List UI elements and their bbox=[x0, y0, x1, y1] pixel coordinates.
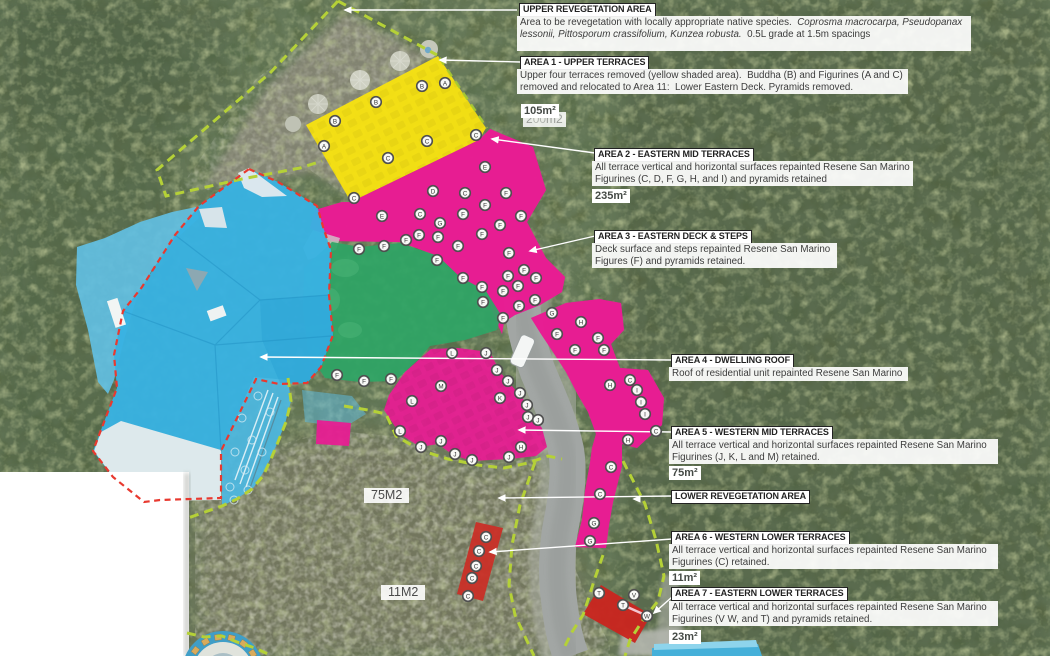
svg-text:J: J bbox=[507, 454, 510, 461]
svg-text:J: J bbox=[495, 367, 498, 374]
svg-text:E: E bbox=[483, 164, 487, 171]
svg-text:D: D bbox=[431, 188, 436, 195]
svg-text:J: J bbox=[470, 457, 473, 464]
svg-text:J: J bbox=[439, 438, 442, 445]
svg-text:J: J bbox=[419, 444, 422, 451]
svg-text:F: F bbox=[357, 246, 361, 253]
svg-text:C: C bbox=[477, 548, 482, 555]
svg-text:C: C bbox=[352, 195, 357, 202]
svg-text:G: G bbox=[588, 538, 593, 545]
svg-text:C: C bbox=[609, 464, 614, 471]
svg-text:I: I bbox=[636, 387, 638, 394]
svg-text:J: J bbox=[506, 378, 509, 385]
svg-text:J: J bbox=[484, 350, 487, 357]
svg-text:F: F bbox=[481, 299, 485, 306]
svg-text:C: C bbox=[463, 190, 468, 197]
svg-text:F: F bbox=[436, 234, 440, 241]
svg-text:C: C bbox=[474, 132, 479, 139]
svg-text:J: J bbox=[453, 451, 456, 458]
svg-text:C: C bbox=[466, 593, 471, 600]
svg-text:G: G bbox=[438, 220, 443, 227]
svg-text:L: L bbox=[398, 428, 402, 435]
svg-text:F: F bbox=[516, 283, 520, 290]
svg-text:C: C bbox=[628, 377, 633, 384]
svg-text:B: B bbox=[420, 83, 424, 90]
svg-text:F: F bbox=[389, 376, 393, 383]
svg-text:F: F bbox=[596, 335, 600, 342]
svg-text:F: F bbox=[602, 347, 606, 354]
svg-text:F: F bbox=[498, 222, 502, 229]
svg-text:G: G bbox=[550, 310, 555, 317]
svg-text:F: F bbox=[417, 232, 421, 239]
svg-text:F: F bbox=[573, 347, 577, 354]
svg-text:I: I bbox=[640, 399, 642, 406]
svg-text:L: L bbox=[450, 350, 454, 357]
svg-text:F: F bbox=[504, 190, 508, 197]
svg-text:B: B bbox=[333, 118, 337, 125]
svg-text:F: F bbox=[501, 315, 505, 322]
svg-text:I: I bbox=[644, 411, 646, 418]
svg-text:F: F bbox=[480, 284, 484, 291]
svg-text:C: C bbox=[598, 491, 603, 498]
svg-text:G: G bbox=[592, 520, 597, 527]
svg-text:T: T bbox=[621, 602, 625, 609]
svg-text:F: F bbox=[534, 275, 538, 282]
svg-text:F: F bbox=[480, 231, 484, 238]
svg-text:E: E bbox=[380, 213, 384, 220]
svg-text:F: F bbox=[404, 237, 408, 244]
svg-text:C: C bbox=[418, 211, 423, 218]
svg-text:L: L bbox=[410, 398, 414, 405]
svg-text:H: H bbox=[579, 319, 584, 326]
svg-text:F: F bbox=[335, 372, 339, 379]
svg-text:H: H bbox=[608, 382, 613, 389]
svg-text:F: F bbox=[507, 250, 511, 257]
svg-text:F: F bbox=[382, 243, 386, 250]
svg-text:F: F bbox=[517, 303, 521, 310]
svg-text:J: J bbox=[526, 414, 529, 421]
svg-text:C: C bbox=[654, 428, 659, 435]
svg-text:F: F bbox=[461, 211, 465, 218]
svg-text:W: W bbox=[644, 613, 650, 620]
svg-text:F: F bbox=[435, 257, 439, 264]
svg-text:F: F bbox=[519, 213, 523, 220]
svg-text:F: F bbox=[461, 275, 465, 282]
svg-text:C: C bbox=[386, 155, 391, 162]
svg-text:M: M bbox=[438, 383, 443, 390]
svg-text:J: J bbox=[518, 390, 521, 397]
svg-text:H: H bbox=[519, 444, 524, 451]
svg-text:F: F bbox=[501, 288, 505, 295]
svg-text:H: H bbox=[626, 437, 631, 444]
svg-text:C: C bbox=[425, 138, 430, 145]
svg-text:B: B bbox=[374, 99, 378, 106]
svg-text:F: F bbox=[522, 267, 526, 274]
svg-text:J: J bbox=[536, 417, 539, 424]
svg-text:F: F bbox=[362, 378, 366, 385]
svg-text:C: C bbox=[470, 575, 475, 582]
svg-text:F: F bbox=[483, 202, 487, 209]
svg-text:F: F bbox=[533, 297, 537, 304]
svg-text:C: C bbox=[474, 563, 479, 570]
svg-text:J: J bbox=[525, 402, 528, 409]
svg-text:F: F bbox=[456, 243, 460, 250]
svg-text:T: T bbox=[597, 590, 601, 597]
svg-text:F: F bbox=[555, 331, 559, 338]
svg-text:C: C bbox=[484, 534, 489, 541]
svg-text:F: F bbox=[506, 273, 510, 280]
